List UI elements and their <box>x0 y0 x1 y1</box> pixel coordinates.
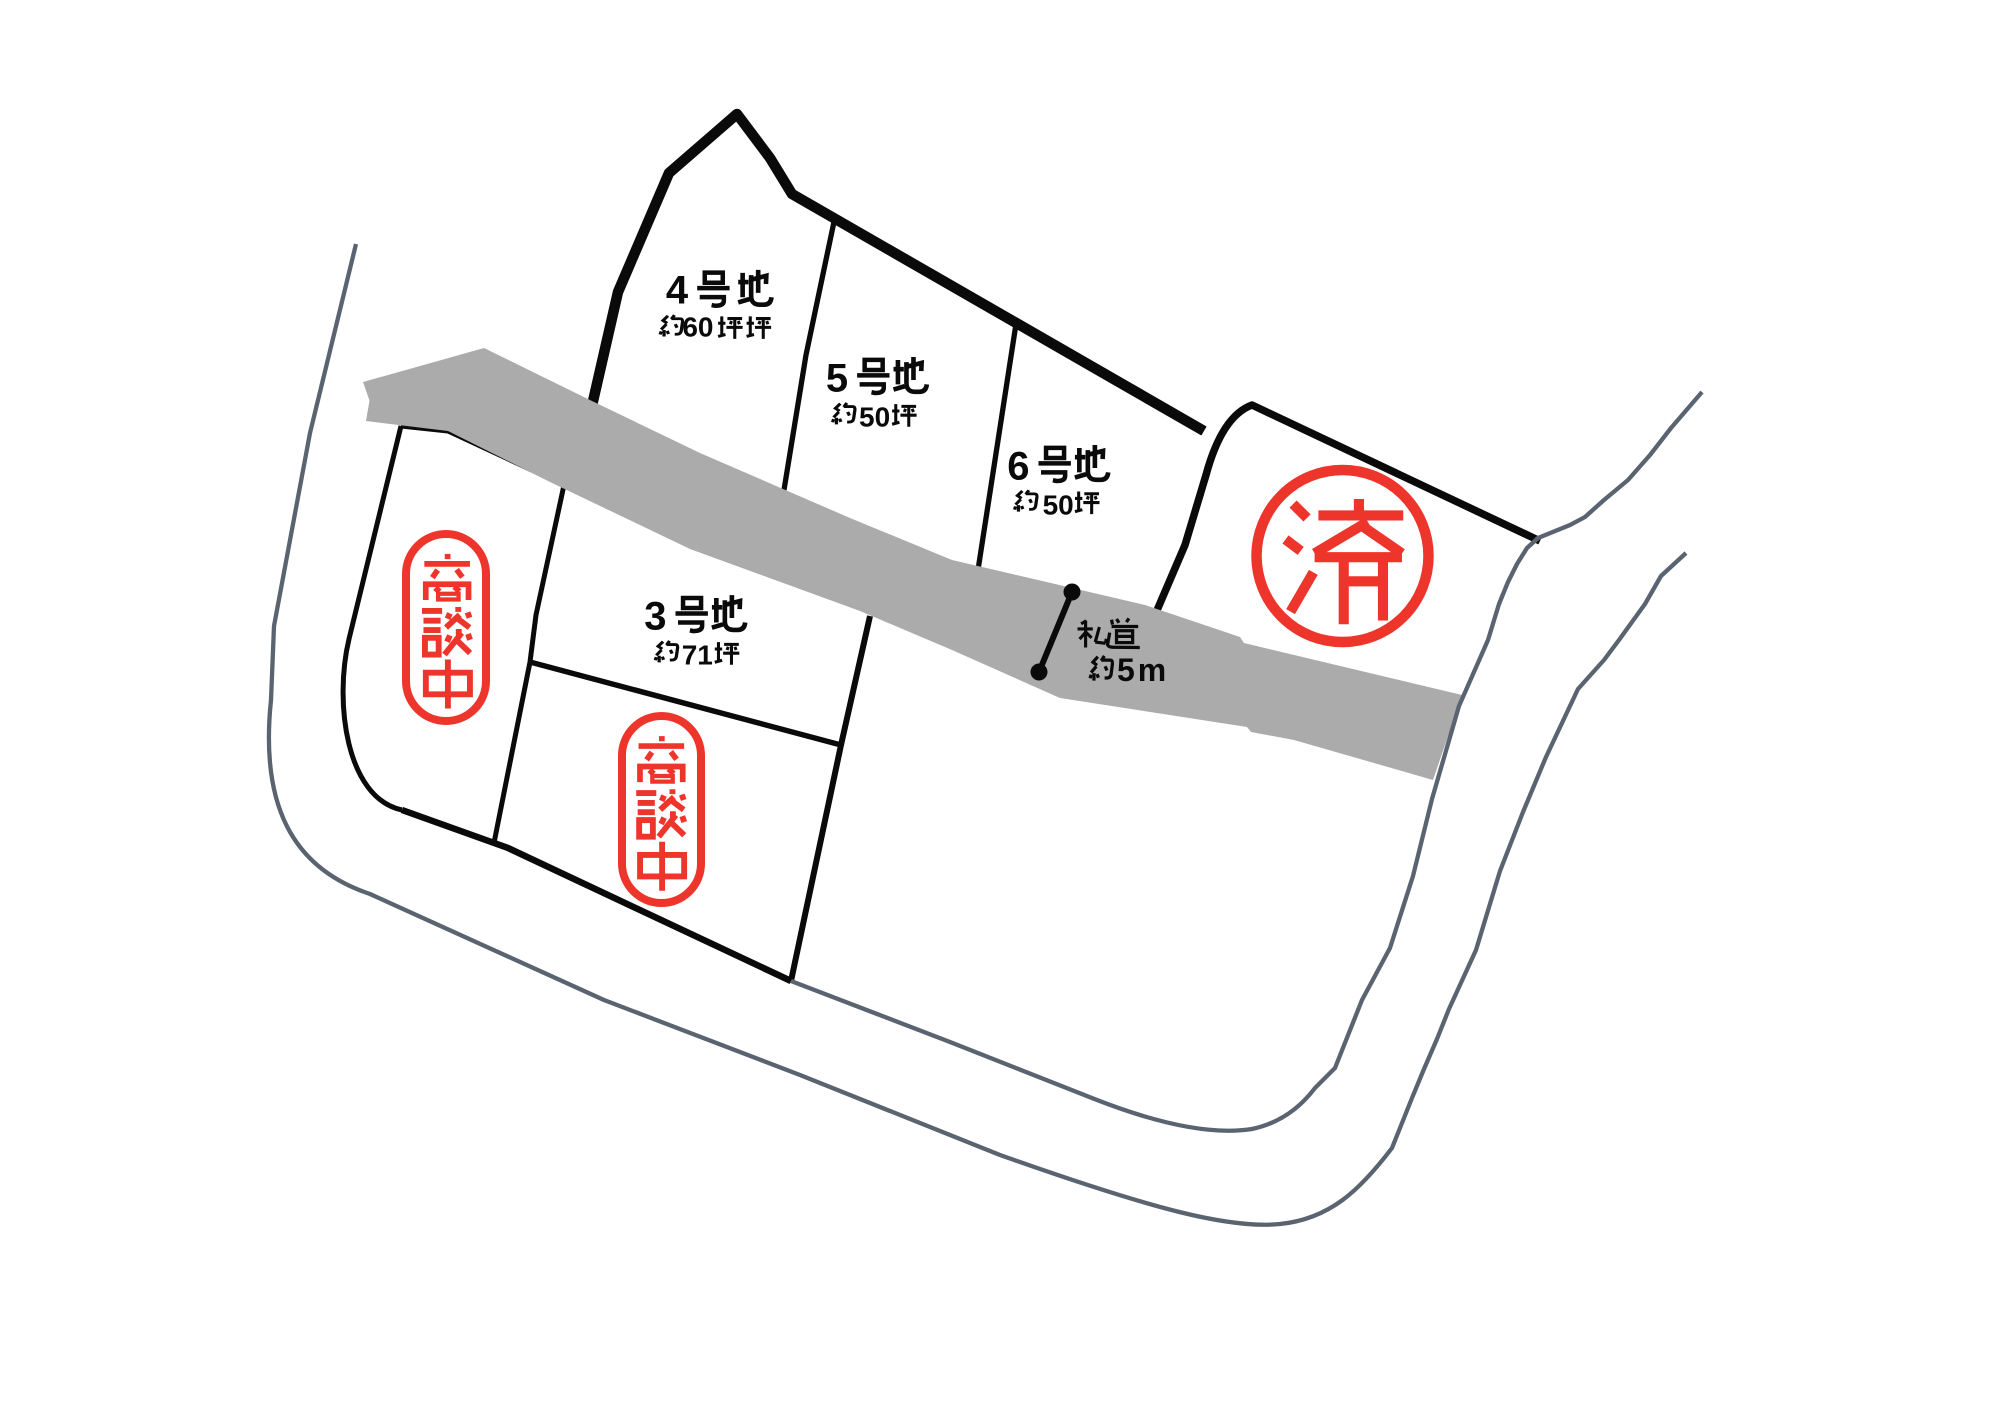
svg-text:m: m <box>1138 652 1166 688</box>
svg-text:5: 5 <box>1117 652 1135 688</box>
svg-text:71: 71 <box>682 639 713 670</box>
svg-text:60: 60 <box>682 312 713 343</box>
svg-text:50: 50 <box>1043 490 1074 521</box>
svg-text:6: 6 <box>1007 444 1029 488</box>
svg-text:5: 5 <box>826 356 848 400</box>
svg-text:50: 50 <box>859 401 890 432</box>
svg-text:3: 3 <box>644 595 666 639</box>
svg-text:4: 4 <box>666 268 689 312</box>
